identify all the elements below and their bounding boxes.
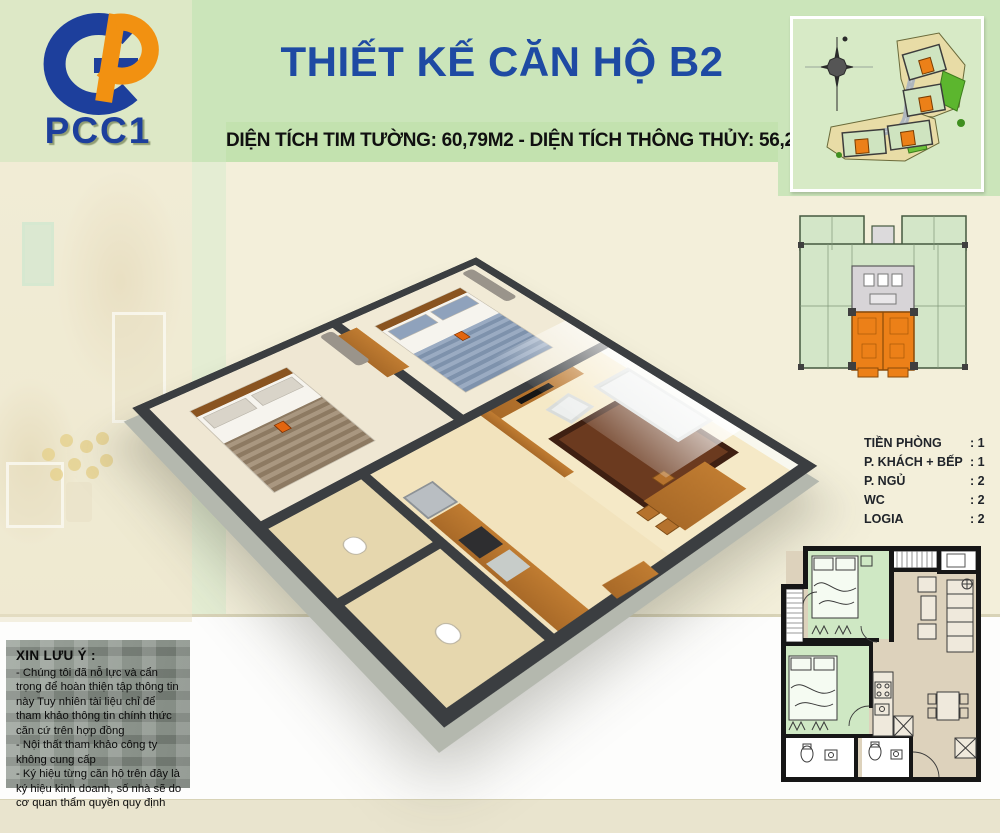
flower-bouquet [38, 430, 118, 490]
site-building [903, 84, 945, 116]
room-label: TIỀN PHÒNG [864, 434, 942, 453]
page-title: THIẾT KẾ CĂN HỘ B2 [226, 38, 778, 86]
room-row: WC : 2 [864, 491, 996, 510]
room-schedule: TIỀN PHÒNG : 1 P. KHÁCH + BẾP : 1 P. NGỦ… [864, 434, 996, 529]
vase [66, 482, 92, 522]
unit-plan-drawing [779, 544, 988, 792]
faded-interior-photo [0, 162, 192, 622]
compass-icon [805, 37, 873, 111]
room-count: : 1 [970, 434, 996, 453]
floor-plate-drawing [788, 202, 978, 392]
site-building [842, 129, 886, 157]
typical-floor-plan [788, 202, 978, 392]
room-count: : 1 [970, 453, 996, 472]
site-plan-drawing [793, 19, 975, 183]
room-row: P. KHÁCH + BẾP : 1 [864, 453, 996, 472]
disclaimer-note: - Ký hiệu từng căn hộ trên đây là ký hiệ… [16, 767, 182, 810]
room-label: LOGIA [864, 510, 904, 529]
window-glow [22, 222, 54, 286]
site-building [888, 120, 933, 150]
room-row: P. NGỦ : 2 [864, 472, 996, 491]
disclaimer-block: XIN LƯU Ý : - Chúng tôi đã nỗ lực và cẩn… [6, 640, 190, 788]
room-row: TIỀN PHÒNG : 1 [864, 434, 996, 453]
disclaimer-note: - Chúng tôi đã nỗ lực và cẩn trọng để ho… [16, 666, 182, 738]
site-plan-thumbnail [790, 16, 984, 192]
page-subtitle: DIỆN TÍCH TIM TƯỜNG: 60,79M2 - DIỆN TÍCH… [226, 130, 778, 152]
pcc1-logo: PCC1 [18, 8, 178, 158]
disclaimer-note: - Nội thất tham khảo công ty không cung … [16, 738, 182, 767]
disclaimer-heading: XIN LƯU Ý : [16, 648, 182, 663]
room-label: P. NGỦ [864, 472, 905, 491]
room-row: LOGIA : 2 [864, 510, 996, 529]
apartment-2d-plan [779, 544, 988, 792]
logo-wordmark: PCC1 [18, 110, 178, 152]
apartment-b2-brochure: PCC1 THIẾT KẾ CĂN HỘ B2 DIỆN TÍCH TIM TƯ… [0, 0, 1000, 833]
room-count: : 2 [970, 510, 996, 529]
room-label: WC [864, 491, 885, 510]
room-count: : 2 [970, 472, 996, 491]
pcc1-logo-icon [18, 8, 178, 116]
room-count: : 2 [970, 491, 996, 510]
room-label: P. KHÁCH + BẾP [864, 453, 963, 472]
